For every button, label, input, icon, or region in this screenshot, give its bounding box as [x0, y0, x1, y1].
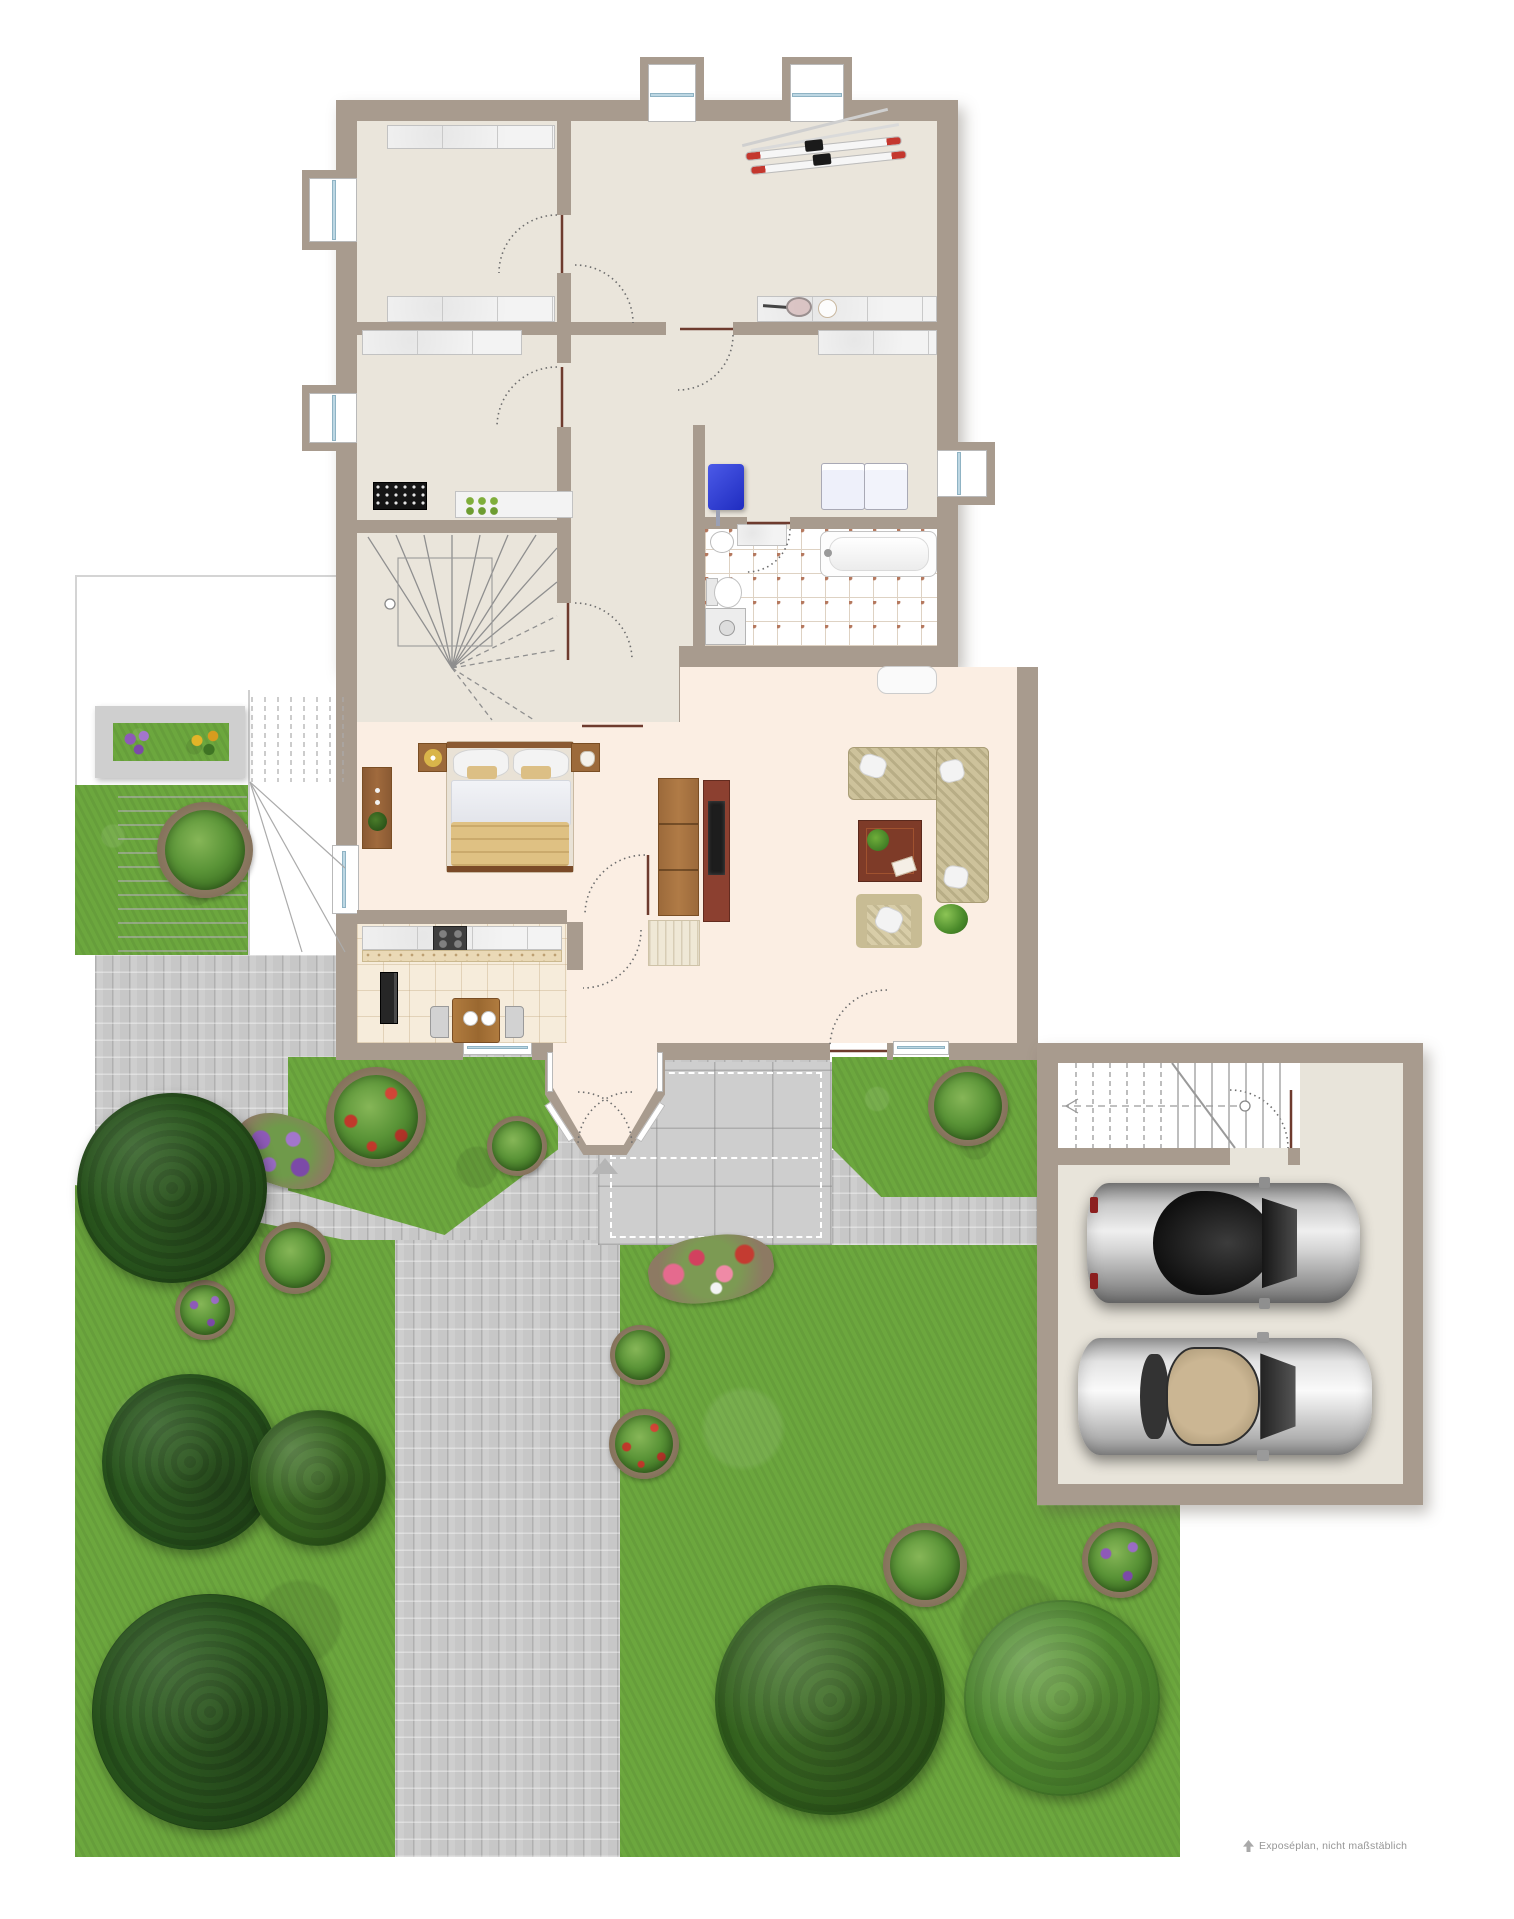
bush-purple-flowers — [1088, 1528, 1152, 1592]
storage-shelf — [387, 296, 555, 322]
storage-shelf — [387, 125, 555, 149]
shower-head-icon — [719, 620, 735, 636]
potted-plant-icon — [934, 904, 968, 934]
bed-accent-pillow — [521, 766, 551, 779]
bed-sheet — [451, 780, 571, 826]
car-mirror — [1257, 1450, 1269, 1461]
washing-machine-1 — [821, 463, 865, 510]
washing-machine-2 — [864, 463, 908, 510]
window-left-1-glass — [332, 180, 336, 240]
window-top-2-glass — [792, 93, 842, 97]
bay-window — [547, 1052, 553, 1092]
tree — [715, 1585, 945, 1815]
boiler — [708, 464, 744, 510]
partition — [693, 425, 705, 646]
fridge — [380, 972, 398, 1024]
bush — [890, 1530, 960, 1600]
bathtub — [820, 531, 937, 577]
tennis-racket-head-icon — [786, 297, 812, 317]
storage-shelf — [362, 330, 522, 355]
window-right — [937, 450, 987, 497]
kitchen-counter — [362, 950, 562, 962]
car-windshield — [1262, 1194, 1297, 1292]
right-wall — [1017, 667, 1038, 1043]
tree — [92, 1594, 328, 1830]
car-interior — [1166, 1347, 1260, 1445]
bathroom-wall — [790, 517, 937, 529]
dining-chair — [505, 1006, 524, 1038]
bush — [265, 1228, 325, 1288]
partition — [557, 121, 571, 215]
partition — [557, 273, 571, 363]
watermark-text: Exposéplan, nicht maßstäblich — [1259, 1840, 1407, 1852]
kitchen-north-wall — [357, 910, 567, 924]
floor-plan: Exposéplan, nicht maßstäblich — [0, 0, 1514, 1919]
bathtub-basin — [829, 537, 929, 571]
double-bed — [446, 741, 574, 873]
faucet-icon — [824, 549, 832, 557]
bush — [615, 1330, 665, 1380]
bush-red-flowers — [615, 1415, 673, 1473]
wine-rack — [373, 482, 427, 510]
bush — [165, 810, 245, 890]
skis — [735, 112, 905, 187]
car-light — [1078, 1338, 1372, 1455]
bedroom-window-glass — [342, 851, 346, 908]
deco-icon — [580, 751, 595, 767]
exterior-stair-strip — [248, 690, 345, 955]
bay-window — [657, 1052, 663, 1092]
potted-plant-icon — [867, 829, 889, 851]
car-cabin-glass — [1153, 1191, 1273, 1294]
tree — [964, 1600, 1160, 1796]
kitchen-window-glass — [467, 1046, 528, 1049]
partition — [557, 533, 571, 603]
watermark-logo-icon — [1243, 1840, 1254, 1852]
car-taillight — [1090, 1197, 1098, 1213]
window-top-1-glass — [650, 93, 694, 97]
watermark: Exposéplan, nicht maßstäblich — [1243, 1838, 1503, 1858]
bed-accent-pillow — [467, 766, 497, 779]
partition — [357, 520, 557, 533]
bed-headboard — [447, 742, 573, 748]
left-wall — [336, 912, 357, 1060]
boiler-pipe — [716, 510, 720, 526]
car-mirror — [1259, 1298, 1270, 1309]
washbasin — [710, 531, 734, 553]
parking-divider — [610, 1157, 818, 1159]
tree — [250, 1410, 386, 1546]
tv-sideboard — [703, 780, 730, 922]
potted-plant-icon — [368, 812, 387, 831]
ski-binding-icon — [804, 139, 823, 152]
garage-inner-wall — [1058, 1148, 1230, 1165]
dining-plate — [481, 1011, 496, 1026]
car-taillight — [1090, 1273, 1098, 1289]
car-dark — [1087, 1183, 1360, 1303]
window-left-2-glass — [332, 395, 336, 441]
tree — [77, 1093, 267, 1283]
table-lamp-icon — [424, 749, 442, 767]
bath-shelf — [737, 524, 787, 546]
toilet-bowl — [714, 577, 742, 608]
storage-shelf — [818, 330, 937, 355]
kitchen-wall-stub — [567, 922, 583, 970]
dresser — [362, 767, 392, 849]
bush-red-flowers — [334, 1075, 418, 1159]
living-window-glass — [897, 1046, 945, 1049]
storage-shelf — [757, 296, 937, 322]
partition — [571, 322, 666, 335]
bush — [934, 1072, 1002, 1140]
bottle-shelf — [455, 491, 573, 518]
car-mirror — [1259, 1177, 1270, 1188]
bush — [492, 1121, 542, 1171]
living-south-wall — [660, 1043, 830, 1060]
garage-inner-wall — [1288, 1148, 1300, 1165]
stair-hall-interior — [357, 644, 679, 722]
dining-chair — [430, 1006, 449, 1038]
coffee-table — [858, 820, 922, 882]
shower — [705, 608, 746, 645]
living-south-wall — [949, 1043, 1037, 1060]
dresser-knob — [375, 788, 380, 793]
planter-flowers-purple — [120, 727, 154, 757]
hall-bench — [877, 666, 937, 694]
window-right-glass — [957, 452, 961, 495]
nightstand — [571, 743, 600, 772]
car-mirror — [1257, 1332, 1269, 1343]
helmet-icon — [818, 299, 837, 318]
left-wall — [336, 743, 357, 847]
tv-icon — [708, 801, 725, 875]
garage-stair-zone — [1058, 1063, 1300, 1148]
dresser-knob — [375, 800, 380, 805]
bed-blanket — [451, 822, 569, 866]
car-windshield — [1260, 1350, 1295, 1444]
stove — [433, 926, 467, 951]
armchair — [856, 894, 922, 948]
nightstand — [418, 743, 447, 772]
bush-purple-flowers — [180, 1285, 230, 1335]
wardrobe — [658, 778, 699, 916]
bed-footboard — [447, 866, 573, 872]
dining-plate — [463, 1011, 478, 1026]
planter-flowers-yellow — [185, 727, 225, 757]
kitchen-south-wall — [336, 1043, 463, 1060]
shoe-cabinet — [648, 920, 700, 966]
ski-binding-icon — [812, 153, 831, 166]
car-rear-glass — [1140, 1354, 1169, 1438]
